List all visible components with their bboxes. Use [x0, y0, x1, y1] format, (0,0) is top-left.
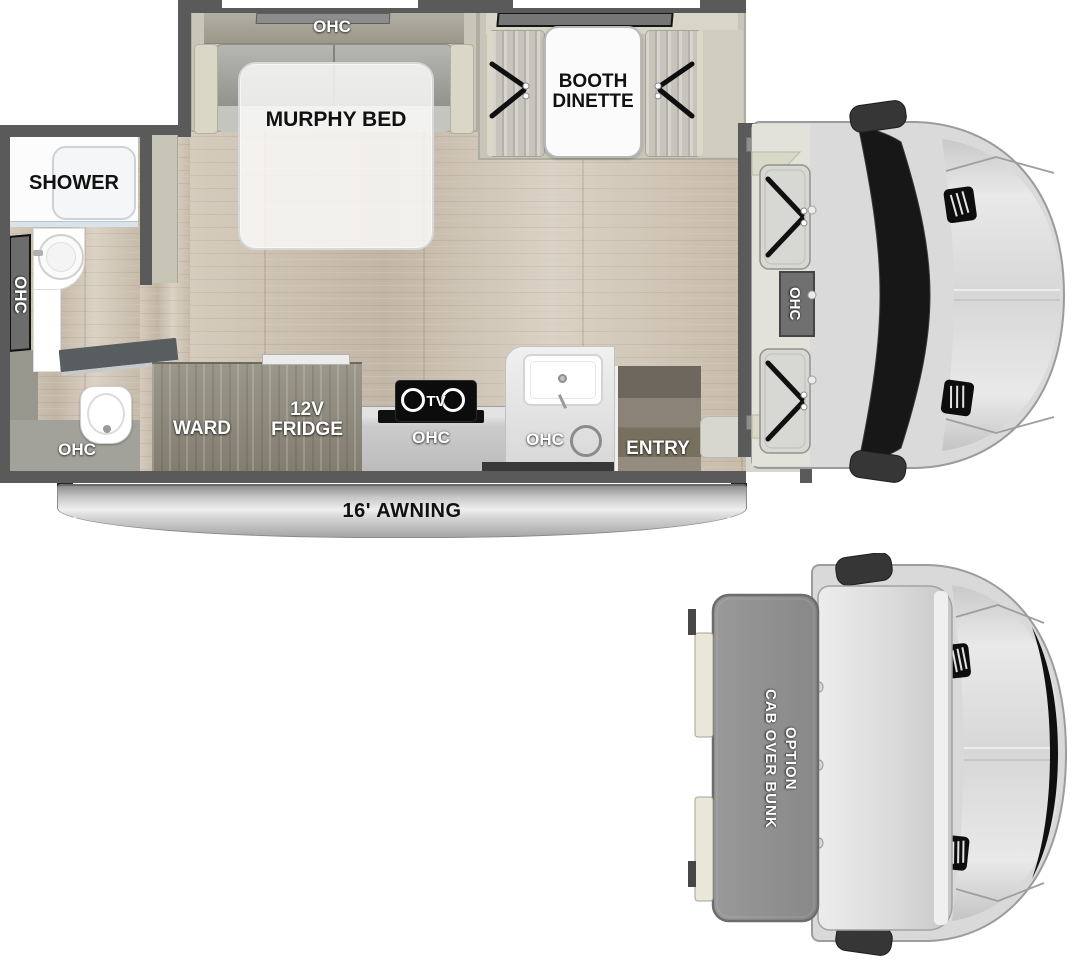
bunk-option-label-line1: CAB OVER BUNK [760, 664, 780, 854]
bunk-pad [695, 797, 713, 901]
wardrobe [152, 362, 252, 472]
cab-over-bunk-illustration [688, 553, 1072, 958]
wall-bottom [10, 471, 746, 483]
hood-vent-icon [943, 186, 977, 224]
top-window [513, 0, 700, 8]
partition-face [152, 135, 178, 283]
cab-ohc-label: OHC [781, 274, 813, 334]
passenger-seat [760, 349, 810, 453]
toilet [80, 386, 132, 444]
hood [952, 585, 1062, 921]
wardrobe-label: WARD [152, 418, 252, 440]
shower-glass [10, 221, 138, 227]
seatbelt-icon [488, 60, 532, 120]
awning-label: 16' AWNING [342, 500, 461, 523]
bath-floor-cabinet-label: OHC [45, 440, 109, 460]
bunk-option-label-line2: OPTION [780, 664, 800, 854]
vanity-sink-inner [46, 242, 76, 272]
kitchen-sink [523, 354, 603, 406]
awning-bar: 16' AWNING [57, 484, 747, 538]
wall-bath-right [140, 135, 152, 285]
wall-left [0, 125, 10, 483]
sofa-arm-right [450, 44, 474, 134]
dinette-table: BOOTH DINETTE [544, 26, 642, 158]
tv-label: TV [396, 393, 476, 410]
refrigerator-label: 12V FRIDGE [257, 400, 357, 440]
counter-cabinet-label: OHC [392, 428, 470, 448]
shower-label: SHOWER [12, 172, 136, 195]
bunk-pad [695, 633, 713, 737]
entry-label: ENTRY [617, 438, 699, 460]
dinette-table-label: BOOTH DINETTE [550, 72, 636, 112]
sink-drain-icon [558, 374, 567, 383]
driver-seat [760, 165, 810, 269]
top-window [222, 0, 418, 8]
bunk-option-label: CAB OVER BUNK OPTION [760, 664, 804, 854]
rv-floorplan-diagram: OHC BOOTH DINETTE MURPHY BED SHOWER OHC [0, 0, 1072, 960]
vanity-faucet-icon [33, 250, 43, 256]
tv: TV [395, 380, 477, 422]
bedroom-ohc-label: OHC [300, 17, 364, 37]
murphy-bed-label: MURPHY BED [240, 108, 432, 132]
counter-round-sink [570, 425, 602, 457]
hood-vent-icon [940, 379, 974, 417]
cab-roof [818, 586, 952, 930]
refrigerator-vent [262, 354, 350, 365]
wall-slide-left [178, 0, 191, 137]
murphy-bed: MURPHY BED [238, 62, 434, 250]
bath-wall-cabinet-label: OHC [8, 245, 34, 345]
sofa-arm-left [194, 44, 218, 134]
dinette-window [496, 12, 673, 27]
toilet-drain [103, 425, 111, 433]
dinette-wing-right [703, 30, 743, 157]
seatbelt-icon [652, 60, 696, 120]
